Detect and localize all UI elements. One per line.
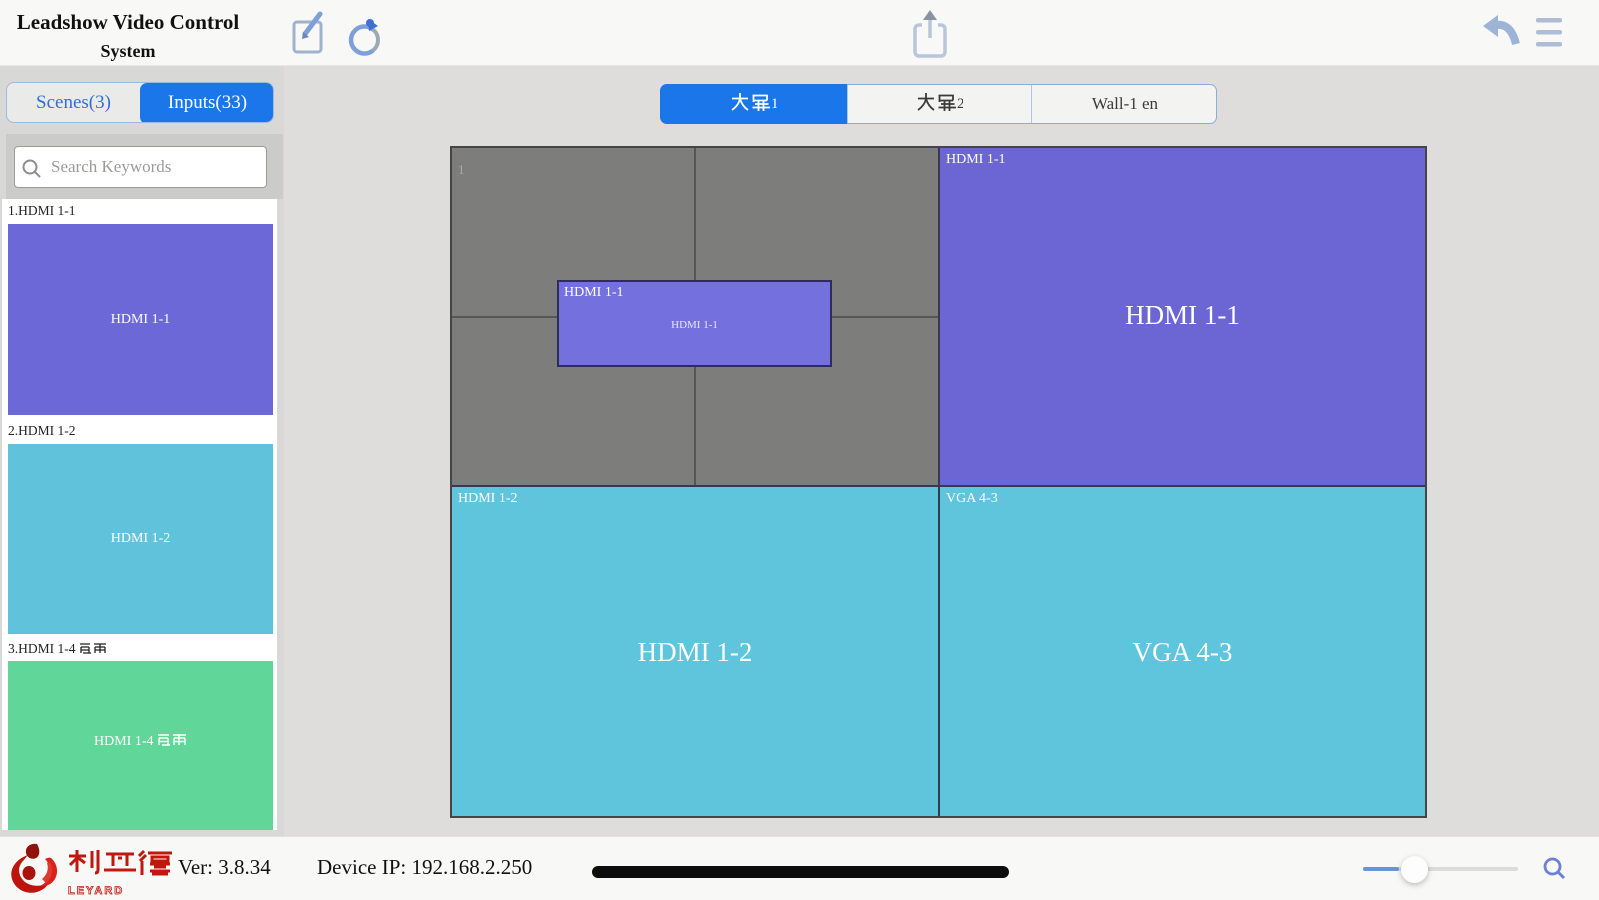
svg-text:1: 1 (771, 96, 777, 112)
svg-text:2: 2 (957, 96, 963, 112)
svg-text:LEYARD: LEYARD (68, 885, 124, 896)
